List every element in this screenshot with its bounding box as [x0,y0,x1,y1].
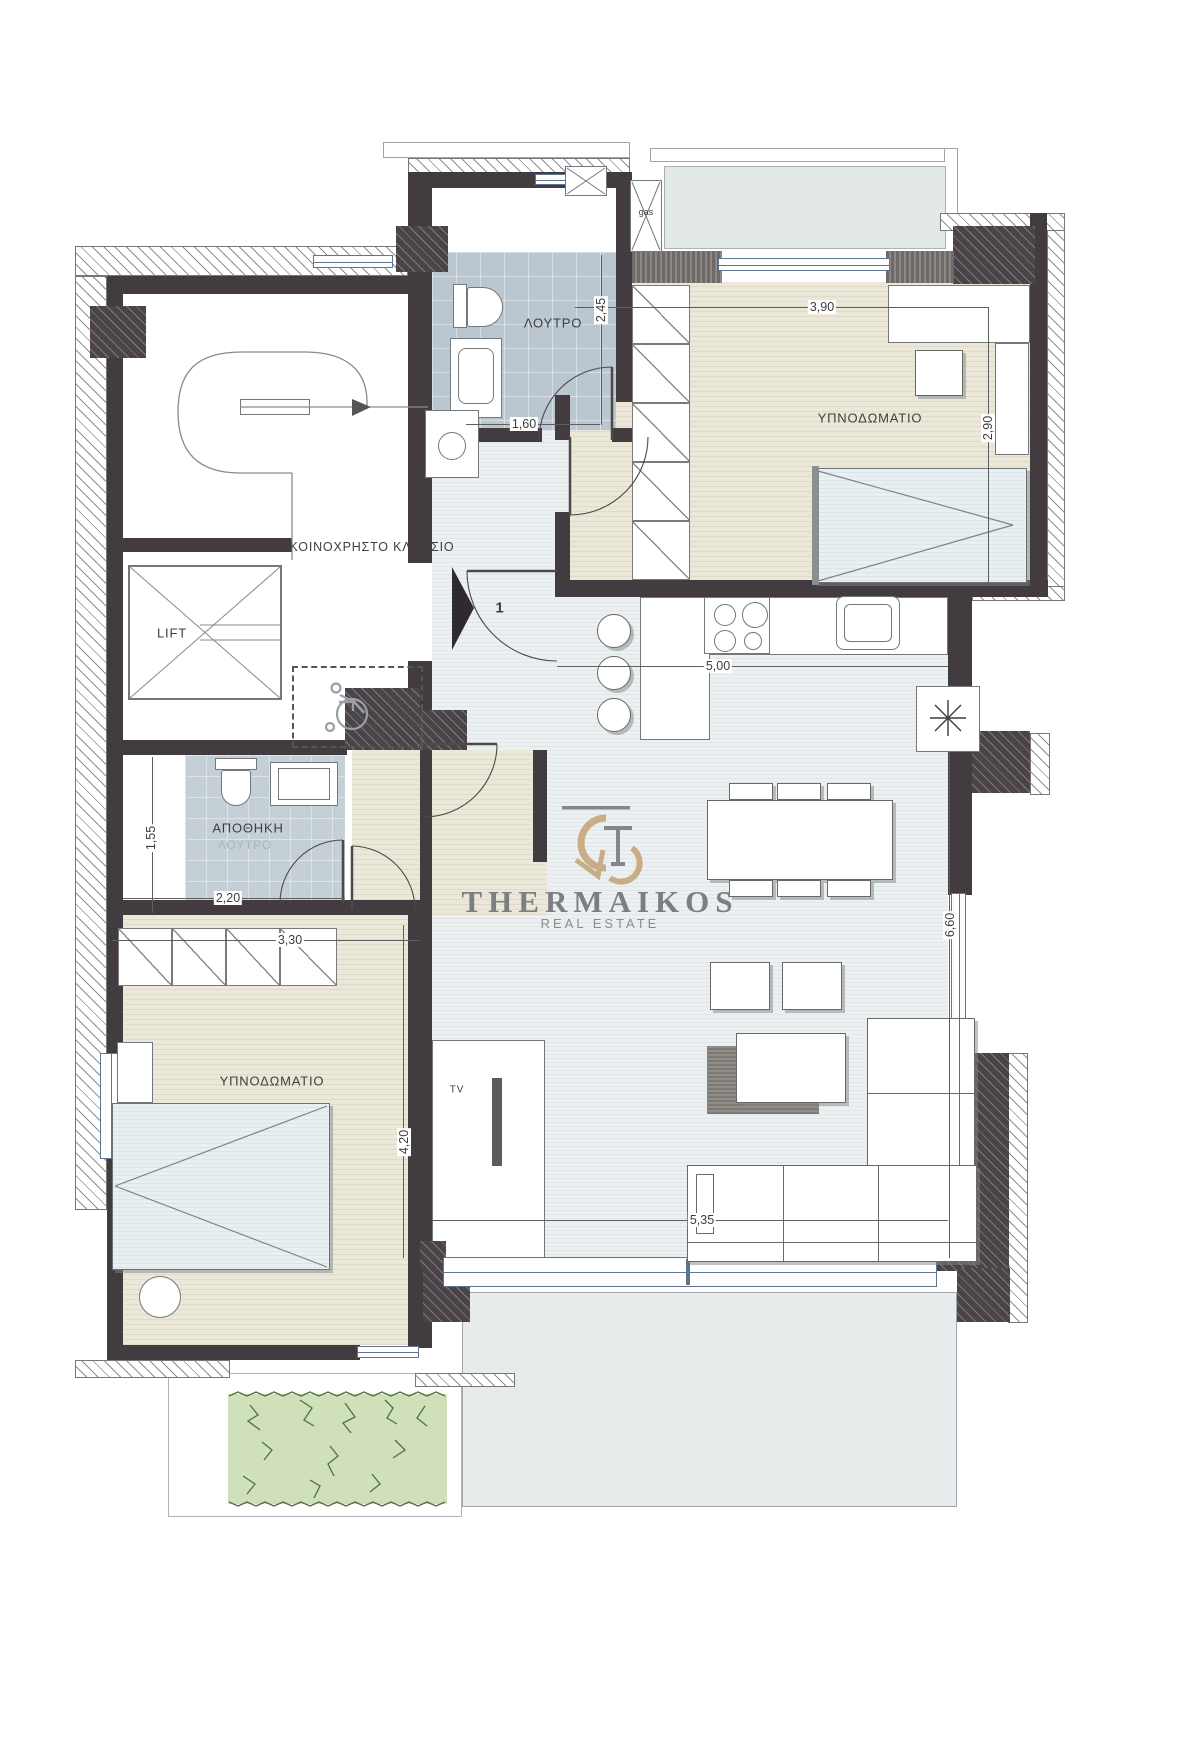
room-label-lift: LIFT [154,626,190,641]
balcony-rail [650,148,958,162]
wall [420,750,432,915]
window-sill [886,251,954,283]
kitchen-island [640,597,710,740]
wall-pier [396,226,448,272]
armchair [710,962,770,1010]
dining-chair [777,880,821,897]
entrance-opening [408,563,432,661]
burner [742,602,768,628]
wall [555,512,570,582]
bar-stool [597,698,631,732]
wall [107,276,408,294]
toilet-tank [453,284,467,328]
dimension-label: 6,60 [943,911,957,939]
balcony [660,162,950,253]
sofa-back-line [959,1019,960,1167]
sofa-cushion-line [783,1166,784,1261]
wall-pier [957,1268,1010,1322]
dimension-label: 5,35 [688,1213,716,1227]
dimension-line [557,666,948,667]
brand-name: THERMAIKOS [450,884,750,920]
wheelchair-turning-area [292,666,423,748]
room-label-bedroom-left: ΥΠΝΟΔΩΜΑΤΙΟ [220,1074,325,1089]
dimension-label: 3,30 [276,933,304,947]
dimension-line [403,925,404,1258]
closet-cell [172,928,226,986]
stair-step [240,399,310,415]
upper-balcony-rail [383,142,630,158]
nightstand [915,350,963,396]
armchair [782,962,842,1010]
bar-stool [597,656,631,690]
closet-cell [226,928,280,986]
wall [612,428,632,442]
wall [107,538,292,552]
desk-return [995,343,1029,455]
wall [107,1345,360,1360]
sofa-cushion-line [878,1166,879,1261]
bed [815,468,1027,583]
bathroom-top-room [432,188,616,252]
closet-cell [632,285,690,344]
label-tv: TV [450,1085,464,1096]
washbasin-bowl [438,432,466,460]
wall-pier [972,731,1030,793]
closet-cell [118,928,172,986]
garden-bed [228,1394,447,1504]
sofa-section [687,1165,977,1262]
burner [714,604,736,626]
dimension-label: 1,55 [144,824,158,852]
toilet-bowl [221,770,251,806]
dining-chair [777,783,821,800]
dimension-line [988,307,989,583]
label-gas: gas [639,207,654,217]
dimension-label: 1,60 [510,417,538,431]
sofa-back-line [688,1242,976,1243]
toilet-tank [215,758,257,770]
outer-wall-hatch [1047,230,1065,598]
sofa-section [867,1018,975,1168]
outer-wall-hatch [1030,733,1050,795]
outer-wall-hatch [415,1373,515,1387]
window [313,255,393,268]
kitchen-sink-basin [844,604,892,642]
closet-cell [632,462,690,521]
dimension-line [575,307,988,308]
desk [888,285,1030,343]
sink-basin [278,768,330,800]
room-label-storage-former: ΛΟΥΤΡΟ [218,838,272,852]
dimension-line [949,752,950,1258]
closet-cell [632,521,690,580]
window-sill [632,251,722,283]
wall [555,395,570,440]
shaft [565,166,607,196]
dimension-line [601,255,602,425]
outer-wall-hatch [75,1360,230,1378]
window [718,258,890,271]
wall [408,915,432,1263]
room-label-bathroom: ΛΟΥΤΡΟ [524,316,582,331]
window [357,1346,419,1358]
dimension-label: 2,20 [214,891,242,905]
closet-cell [632,344,690,403]
bed [112,1103,330,1270]
tv-unit [432,1040,545,1263]
burner [744,632,762,650]
wall [533,750,547,862]
headboard [812,466,819,585]
dining-chair [827,880,871,897]
room-label-bedroom-right: ΥΠΝΟΔΩΜΑΤΙΟ [818,411,923,426]
bar-stool [597,614,631,648]
lift-cab [128,565,282,700]
sink-basin [458,348,494,404]
stair-direction-icon [178,352,428,560]
dining-table [707,800,893,880]
dimension-label: 2,45 [594,296,608,324]
floor-plan: 2,45 1,60 3,90 2,90 5,00 1,55 2,20 3,30 … [0,0,1200,1742]
dining-chair [729,783,773,800]
wall [948,750,972,895]
brand-tagline: REAL ESTATE [450,916,750,931]
dimension-label: 5,00 [704,659,732,673]
coffee-table [736,1033,846,1103]
wall [107,900,420,915]
wall-pier [90,306,146,358]
wall-pier [953,226,1035,284]
dimension-label: 3,90 [808,300,836,314]
dimension-line [112,940,420,941]
tv-icon [492,1078,502,1166]
window-mullion [686,1259,690,1285]
closet-cell [632,403,690,462]
dimension-label: 2,90 [981,414,995,442]
dimension-label: 4,20 [397,1128,411,1156]
room-label-storage: ΑΠΟΘΗΚΗ [212,821,283,836]
dining-chair [827,783,871,800]
terrace [462,1292,957,1507]
burner [714,630,736,652]
entrance-number: 1 [495,600,504,617]
wall [408,172,432,402]
side-table [139,1276,181,1318]
outer-wall-hatch [1008,1053,1028,1323]
nightstand [117,1042,153,1103]
room-label-stairwell: ΚΟΙΝΟΧΡΗΣΤΟ ΚΛΙΜ/ΣΙΟ [290,540,455,554]
heater-niche [916,686,980,752]
